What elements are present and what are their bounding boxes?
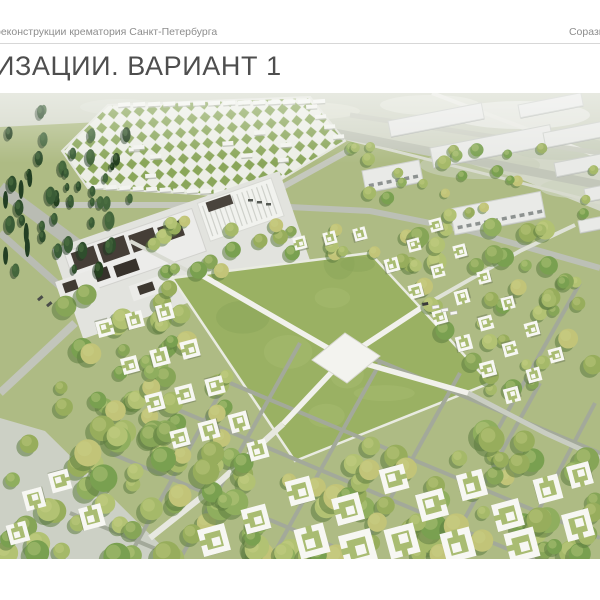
masterplan-aerial-render	[0, 93, 600, 559]
header-brand-label: Соразм	[569, 26, 600, 38]
header-divider	[0, 43, 600, 44]
scene-svg	[0, 93, 600, 559]
page-title: ИЗАЦИИ. ВАРИАНТ 1	[0, 51, 282, 82]
page-root: реконструкции крематория Санкт-Петербург…	[0, 0, 600, 600]
header-project-label: реконструкции крематория Санкт-Петербург…	[0, 26, 217, 38]
